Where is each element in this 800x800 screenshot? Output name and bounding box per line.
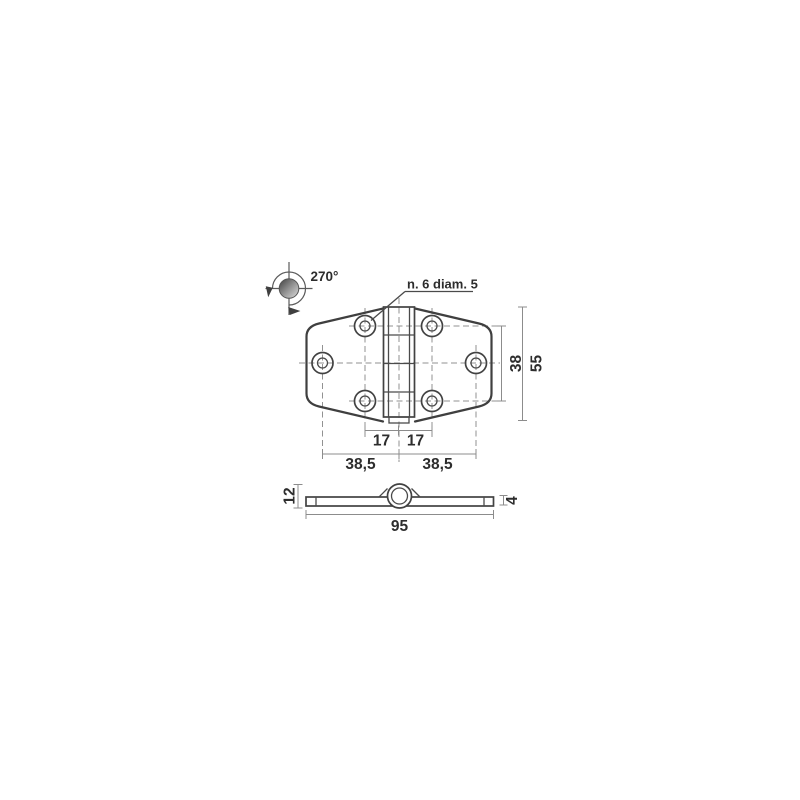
rotation-symbol: 270°: [266, 262, 339, 315]
dim-height-label: 55: [529, 355, 546, 373]
hole-note: n. 6 diam. 5: [371, 277, 478, 321]
dimension-leaf-thickness: 4: [500, 496, 522, 506]
dimension-knuckle-height: 12: [282, 485, 303, 509]
rotation-angle-label: 270°: [311, 269, 339, 284]
dimension-length: 95: [306, 510, 494, 535]
knuckle-connector-right: [412, 489, 421, 498]
dim-outer-right-label: 38,5: [422, 456, 453, 473]
arrowhead-bottom-icon: [288, 307, 300, 315]
arrowhead-left-icon: [266, 286, 273, 297]
top-view: n. 6 diam. 5 17 17 38,5 38,5 38: [299, 277, 546, 474]
hinge-technical-drawing: 270°: [0, 0, 800, 800]
knuckle-connector-left: [379, 489, 388, 498]
dimension-height: 55: [518, 307, 546, 421]
pivot-ball-icon: [279, 279, 299, 299]
dim-knuckle-height-label: 12: [282, 487, 299, 504]
dim-length-label: 95: [391, 518, 409, 535]
dim-pitch-right-label: 17: [407, 433, 424, 450]
dim-leaf-thickness-label: 4: [504, 496, 521, 505]
dimension-row-spacing: 38: [497, 326, 525, 401]
centerlines: [299, 298, 500, 462]
hole-note-label: n. 6 diam. 5: [407, 277, 478, 292]
dim-pitch-left-label: 17: [373, 433, 390, 450]
side-view: 12 4 95: [282, 484, 522, 535]
drawing-canvas: 270°: [0, 0, 800, 800]
dim-outer-left-label: 38,5: [345, 456, 376, 473]
